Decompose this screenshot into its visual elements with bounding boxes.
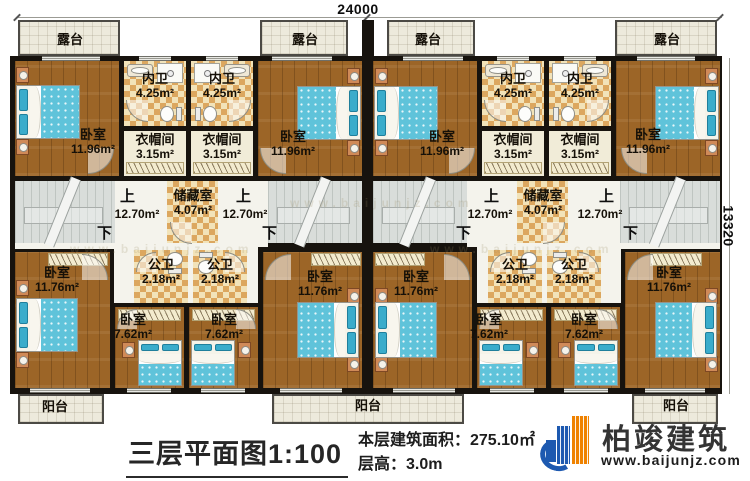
guest-bath-1-label: 公卫2.18m² xyxy=(134,258,188,286)
wardrobe xyxy=(551,162,609,174)
plan-info: 本层建筑面积：275.10㎡ 层高：3.0m xyxy=(358,429,535,477)
bed-mattress xyxy=(575,364,617,385)
toilet-tank xyxy=(553,107,559,121)
right-dimension: 13320 xyxy=(721,205,737,246)
guest-bath-4-label: 公卫2.18m² xyxy=(547,258,601,286)
hall-4-label: 12.70m² xyxy=(571,208,629,221)
logo-building-icon xyxy=(546,440,556,462)
wardrobe xyxy=(311,253,361,266)
stair-down-label: 下 xyxy=(456,222,471,243)
bed-cushions xyxy=(192,341,234,354)
bed xyxy=(16,298,78,352)
nightstand xyxy=(375,356,388,372)
stair-rail xyxy=(24,207,103,224)
brand-site: www.baijunjz.com xyxy=(601,452,741,468)
nightstand xyxy=(238,342,251,358)
balcony-3-label: 阳台 xyxy=(646,399,706,414)
ensuite-1-label: 内卫4.25m² xyxy=(124,72,186,100)
toilet-bowl xyxy=(561,106,575,122)
toilet xyxy=(518,106,540,122)
bed-mattress xyxy=(41,299,77,351)
logo-building-icon xyxy=(572,416,589,464)
staircase-2 xyxy=(268,181,362,243)
bed xyxy=(138,340,182,386)
bed xyxy=(297,302,359,358)
corridor-under-stair-4 xyxy=(620,243,720,249)
bed-pillow xyxy=(30,299,41,351)
terrace-1-label: 露台 xyxy=(40,33,100,48)
window xyxy=(497,56,529,61)
bed xyxy=(375,302,437,358)
bedroom-5-label: 卧室11.76m² xyxy=(14,266,100,294)
bed-cushions xyxy=(347,87,360,139)
nightstand xyxy=(122,342,135,358)
ensuite-4-label: 内卫4.25m² xyxy=(549,72,611,100)
window xyxy=(564,388,608,393)
terrace-3-label: 露台 xyxy=(398,33,458,48)
window xyxy=(403,56,463,61)
guest-bath-2-label: 公卫2.18m² xyxy=(193,258,247,286)
bed-cushions xyxy=(345,303,358,357)
toilet xyxy=(553,106,575,122)
bed-pillow xyxy=(30,86,41,138)
nightstand xyxy=(375,140,388,156)
bed-cushions xyxy=(17,299,30,351)
bed-mattress xyxy=(656,303,692,357)
watermark: www.baijunjz.com xyxy=(290,196,474,210)
terrace-4-label: 露台 xyxy=(637,33,697,48)
bed-pillow xyxy=(139,354,181,364)
ensuite-2-label: 内卫4.25m² xyxy=(191,72,253,100)
bed-cushions xyxy=(705,87,718,139)
bedroom-11-label: 卧室7.62m² xyxy=(551,313,617,341)
nightstand xyxy=(705,140,718,156)
nightstand xyxy=(705,68,718,84)
stair-up-label: 上 xyxy=(236,185,251,206)
floor-area-text: 本层建筑面积：275.10㎡ xyxy=(358,429,535,453)
floor-plan-canvas: 24000 13320 xyxy=(0,0,750,481)
nightstand xyxy=(347,140,360,156)
stair-up-label: 上 xyxy=(120,185,135,206)
toilet xyxy=(195,106,217,122)
balcony-2-label: 阳台 xyxy=(338,399,398,414)
nightstand xyxy=(16,67,29,83)
bed-cushions xyxy=(375,87,388,139)
bed-cushions xyxy=(480,341,522,354)
bed-cushions xyxy=(17,86,30,138)
dimension-tick xyxy=(716,14,724,22)
bed-mattress xyxy=(139,364,181,385)
bed xyxy=(479,340,523,386)
hall-3-label: 12.70m² xyxy=(461,208,519,221)
bed-cushions xyxy=(575,341,617,354)
toilet-bowl xyxy=(160,106,174,122)
bed-cushions xyxy=(376,303,389,357)
terrace-2-label: 露台 xyxy=(275,33,335,48)
stair-down-label: 下 xyxy=(623,222,638,243)
window xyxy=(272,56,332,61)
bedroom-8-label: 卧室11.76m² xyxy=(276,270,364,298)
nightstand xyxy=(558,342,571,358)
nightstand xyxy=(375,68,388,84)
guest-bath-3-label: 公卫2.18m² xyxy=(488,258,542,286)
wardrobe xyxy=(484,162,542,174)
party-wall-stub xyxy=(362,20,374,56)
bed-cushions xyxy=(139,341,181,354)
wardrobe xyxy=(193,162,251,174)
top-dimension-line xyxy=(16,17,722,18)
bed-pillow xyxy=(389,303,400,357)
nightstand xyxy=(16,352,29,368)
bed-pillow xyxy=(694,87,705,139)
window xyxy=(139,56,171,61)
stair-up-label: 上 xyxy=(484,185,499,206)
bedroom-10-label: 卧室7.62m² xyxy=(456,313,522,341)
plan-title: 三层平面图1:100 xyxy=(126,432,348,478)
bed-mattress xyxy=(400,303,436,357)
floor-height-text: 层高：3.0m xyxy=(358,453,535,477)
logo-building-icon xyxy=(557,426,570,464)
window xyxy=(564,56,596,61)
balcony-1-label: 阳台 xyxy=(25,400,85,415)
bedroom-12-label: 卧室11.76m² xyxy=(624,266,714,294)
bed xyxy=(191,340,235,386)
nightstand xyxy=(705,356,718,372)
bed xyxy=(655,302,717,358)
window xyxy=(42,56,100,61)
bedroom-7-label: 卧室7.62m² xyxy=(191,313,257,341)
toilet-bowl xyxy=(203,106,217,122)
bedroom-9-label: 卧室11.76m² xyxy=(372,270,460,298)
nightstand xyxy=(526,342,539,358)
stair-rail xyxy=(629,207,708,224)
stair-down-label: 下 xyxy=(97,222,112,243)
window xyxy=(201,388,245,393)
toilet-tank xyxy=(195,107,201,121)
toilet-bowl xyxy=(518,106,532,122)
wardrobe xyxy=(375,253,425,266)
wardrobe xyxy=(126,162,184,174)
balcony-door xyxy=(280,388,342,393)
bed-pillow xyxy=(480,354,522,364)
bed xyxy=(574,340,618,386)
bed-mattress xyxy=(192,364,234,385)
bed-mattress xyxy=(298,303,334,357)
window xyxy=(206,56,238,61)
toilet-tank xyxy=(176,107,182,121)
window xyxy=(127,388,171,393)
closet-4-label: 衣帽间3.15m² xyxy=(541,133,619,161)
toilet-tank xyxy=(534,107,540,121)
nightstand xyxy=(347,68,360,84)
brand-logo-icon xyxy=(542,412,600,474)
toilet xyxy=(160,106,182,122)
bed-pillow xyxy=(692,303,703,357)
balcony-door xyxy=(393,388,455,393)
hall-1-label: 12.70m² xyxy=(108,208,166,221)
nightstand xyxy=(347,356,360,372)
balcony-door xyxy=(645,388,705,393)
nightstand xyxy=(16,139,29,155)
hall-2-label: 12.70m² xyxy=(216,208,274,221)
bed-mattress xyxy=(480,364,522,385)
stair-up-label: 上 xyxy=(599,185,614,206)
closet-2-label: 衣帽间3.15m² xyxy=(183,133,261,161)
storage-1-label: 储藏室4.07m² xyxy=(164,189,222,217)
storage-2-label: 储藏室4.07m² xyxy=(514,189,572,217)
window xyxy=(637,56,695,61)
bed-pillow xyxy=(192,354,234,364)
watermark: www.baijunjz.com xyxy=(430,242,614,256)
top-dimension: 24000 xyxy=(330,1,386,17)
bed-cushions xyxy=(703,303,716,357)
ensuite-3-label: 内卫4.25m² xyxy=(482,72,544,100)
bed-pillow xyxy=(334,303,345,357)
staircase-3 xyxy=(373,181,467,243)
bed-pillow xyxy=(575,354,617,364)
balcony-door xyxy=(30,388,90,393)
bedroom-6-label: 卧室7.62m² xyxy=(100,313,166,341)
window xyxy=(490,388,534,393)
watermark: www.baijunjz.com xyxy=(70,242,254,256)
bedroom-2-label: 卧室11.96m² xyxy=(248,130,338,158)
stair-down-label: 下 xyxy=(262,222,277,243)
